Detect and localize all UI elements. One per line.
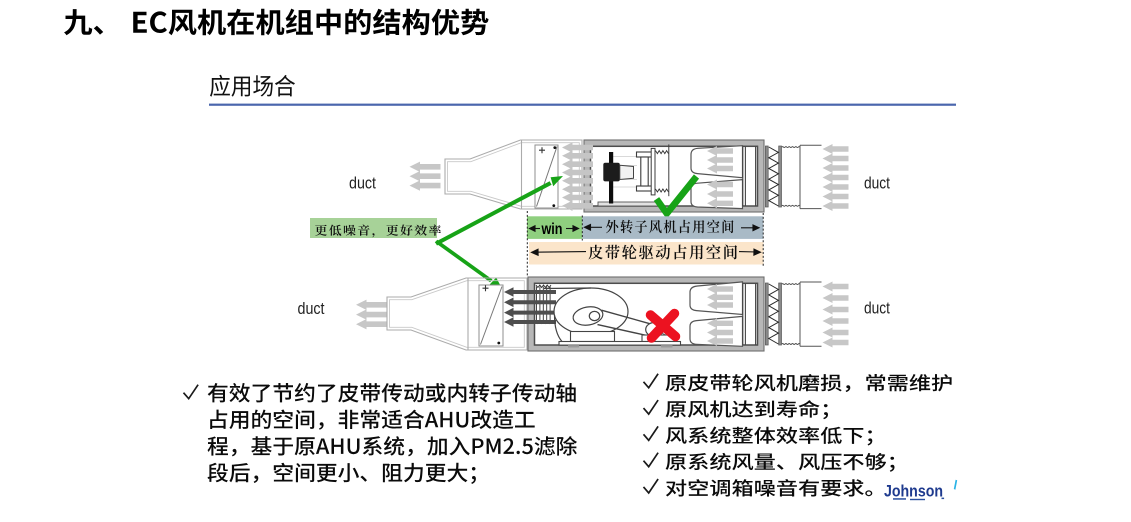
svg-text:Johnson: Johnson [884,483,943,501]
svg-text:duct: duct [298,300,325,318]
svg-text:duct: duct [349,175,376,193]
svg-text:duct: duct [864,175,890,193]
svg-text:duct: duct [864,300,890,318]
svg-text:win: win [541,221,563,238]
